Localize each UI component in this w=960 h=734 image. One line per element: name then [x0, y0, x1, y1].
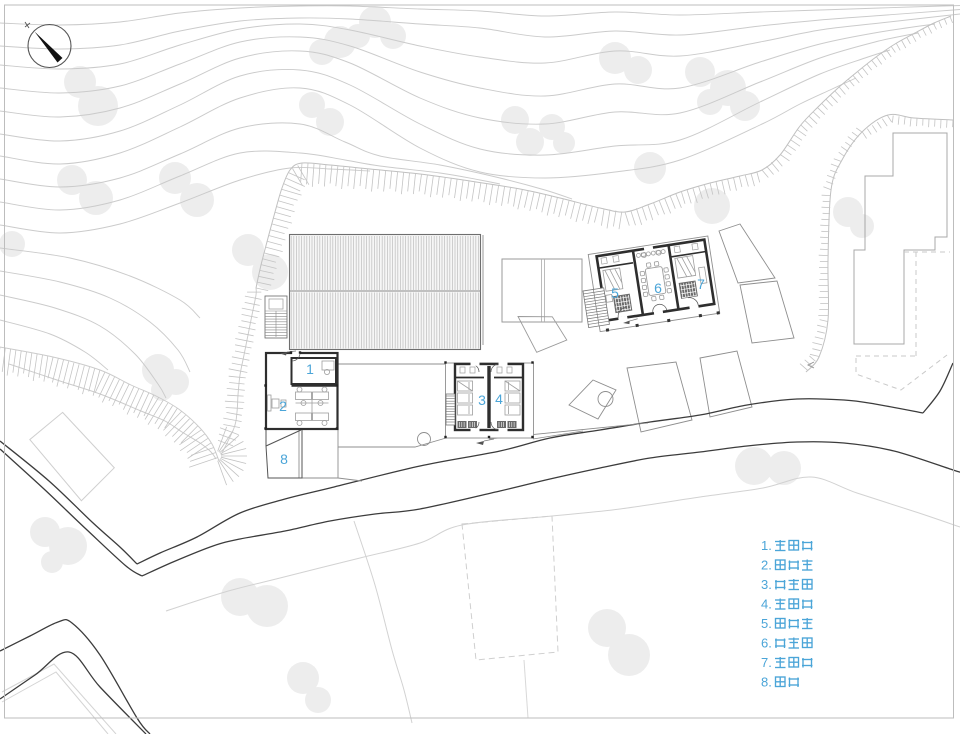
svg-text:6: 6	[654, 280, 662, 296]
svg-text:8: 8	[280, 451, 288, 467]
svg-text:4: 4	[495, 391, 503, 407]
svg-text:5: 5	[611, 285, 619, 301]
svg-text:1.: 1.	[761, 538, 772, 553]
svg-text:2: 2	[279, 398, 287, 414]
svg-text:8.: 8.	[761, 675, 772, 690]
svg-text:3.: 3.	[761, 577, 772, 592]
svg-text:1: 1	[306, 361, 314, 377]
svg-text:5.: 5.	[761, 616, 772, 631]
svg-text:6.: 6.	[761, 636, 772, 651]
svg-text:7.: 7.	[761, 655, 772, 670]
svg-text:2.: 2.	[761, 558, 772, 573]
svg-text:3: 3	[478, 392, 486, 408]
svg-text:4.: 4.	[761, 597, 772, 612]
svg-text:7: 7	[697, 276, 705, 292]
